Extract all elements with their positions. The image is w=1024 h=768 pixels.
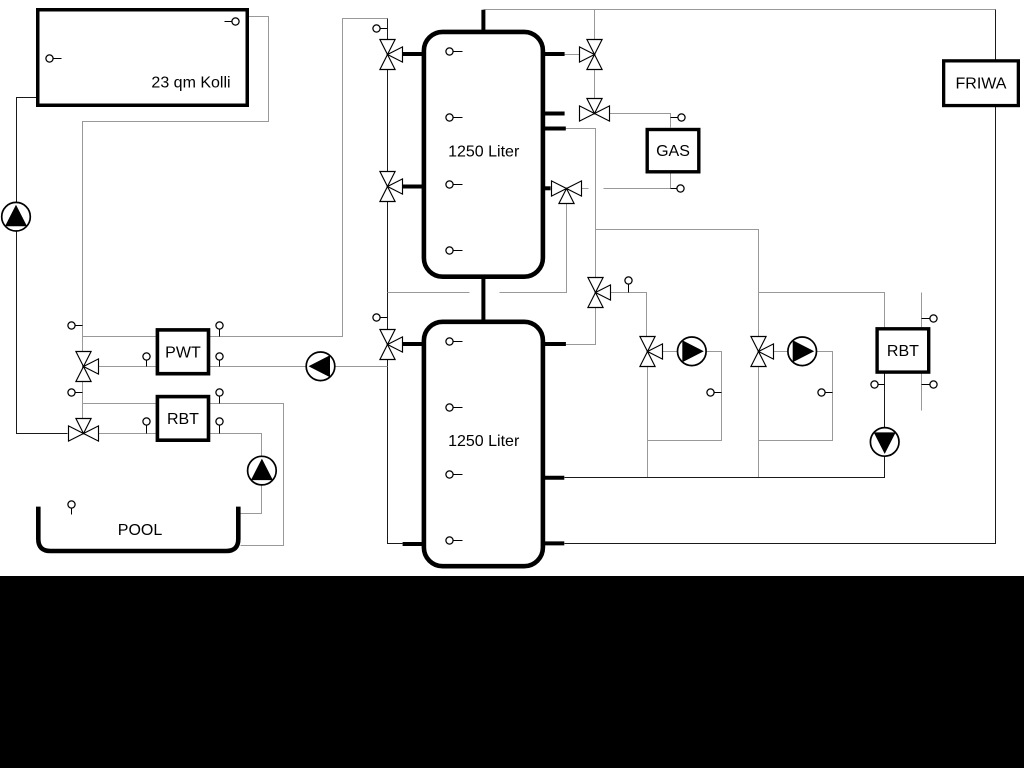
svg-text:1250 Liter: 1250 Liter xyxy=(448,433,520,450)
svg-text:POOL: POOL xyxy=(118,522,163,539)
svg-text:1250 Liter: 1250 Liter xyxy=(448,144,520,161)
svg-text:RBT: RBT xyxy=(167,411,199,428)
svg-text:FRIWA: FRIWA xyxy=(956,76,1007,93)
svg-text:RBT: RBT xyxy=(887,343,919,360)
svg-text:GAS: GAS xyxy=(656,143,690,160)
svg-text:23 qm Kolli: 23 qm Kolli xyxy=(151,75,230,92)
svg-text:PWT: PWT xyxy=(165,344,201,361)
